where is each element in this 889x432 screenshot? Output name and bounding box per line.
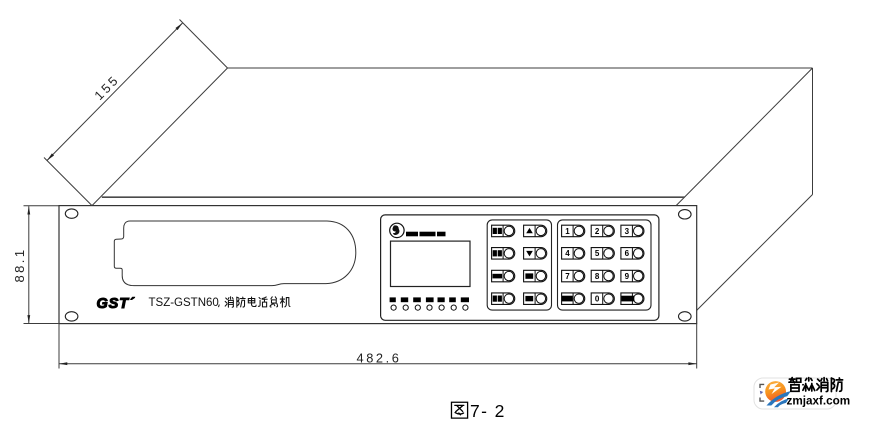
svg-text:1: 1 <box>565 227 570 236</box>
svg-text:8: 8 <box>595 272 600 281</box>
svg-text:TSZ-GSTN60: TSZ-GSTN60 <box>149 297 219 309</box>
svg-text:4: 4 <box>565 249 570 258</box>
svg-text:7: 7 <box>565 272 570 281</box>
svg-text:0: 0 <box>595 295 600 304</box>
svg-text:GST´: GST´ <box>97 296 136 312</box>
svg-text:7- 2: 7- 2 <box>470 401 506 421</box>
svg-text:5: 5 <box>595 249 600 258</box>
svg-text:zmjaxf.com: zmjaxf.com <box>787 395 851 408</box>
svg-text:3: 3 <box>625 227 630 236</box>
svg-text:2: 2 <box>595 227 600 236</box>
svg-text:88.1: 88.1 <box>12 248 27 283</box>
svg-text:482.6: 482.6 <box>356 350 401 365</box>
svg-text:9: 9 <box>625 272 630 281</box>
svg-text:6: 6 <box>625 249 630 258</box>
